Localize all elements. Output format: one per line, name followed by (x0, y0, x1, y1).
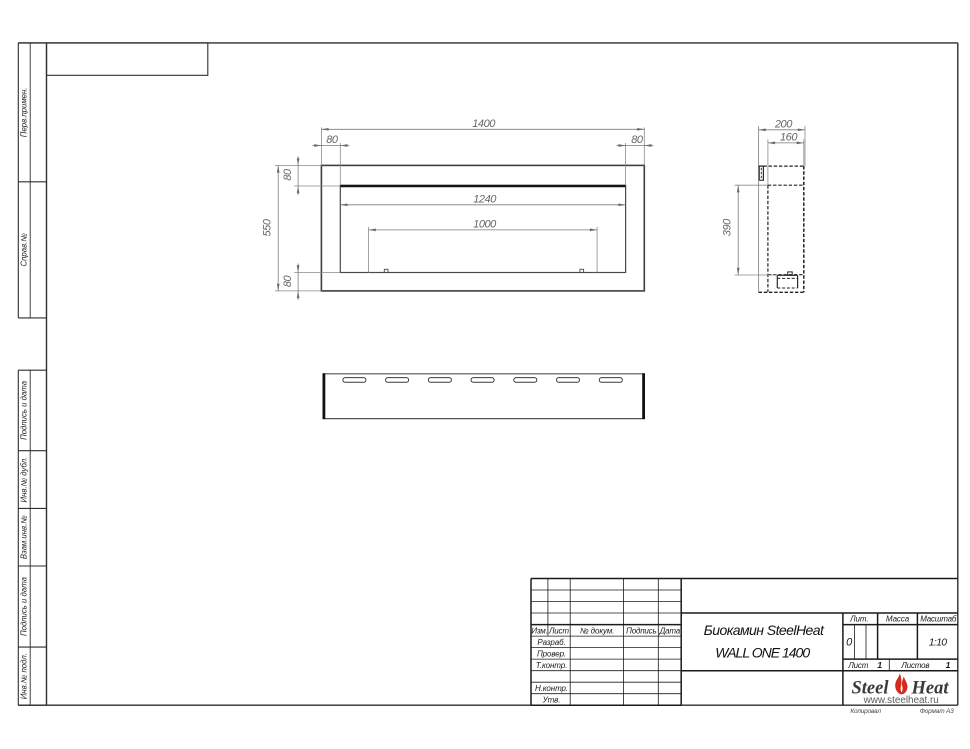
svg-text:1000: 1000 (473, 218, 497, 230)
svg-text:Инв.№ дубл.: Инв.№ дубл. (19, 457, 28, 503)
svg-text:1400: 1400 (472, 118, 496, 130)
svg-text:Биокамин SteelHeat: Биокамин SteelHeat (704, 622, 825, 638)
svg-text:Лит.: Лит. (849, 615, 868, 624)
svg-text:Копировал: Копировал (850, 708, 881, 715)
svg-text:Масштаб: Масштаб (920, 615, 957, 624)
svg-text:Утв.: Утв. (542, 695, 561, 704)
svg-text:390: 390 (722, 218, 734, 236)
svg-text:Провер.: Провер. (537, 649, 566, 658)
svg-text:Листов: Листов (900, 661, 929, 670)
svg-text:200: 200 (774, 118, 793, 130)
svg-text:Н.контр.: Н.контр. (535, 684, 568, 693)
svg-text:1240: 1240 (473, 193, 497, 205)
svg-text:Лист: Лист (847, 661, 868, 670)
svg-text:80: 80 (282, 168, 294, 181)
svg-text:Перв.примен.: Перв.примен. (19, 88, 28, 138)
svg-text:Масса: Масса (886, 615, 910, 624)
svg-text:Формат А3: Формат А3 (920, 708, 954, 715)
svg-text:Справ.№: Справ.№ (19, 233, 28, 266)
svg-text:1:10: 1:10 (929, 637, 947, 649)
svg-text:80: 80 (326, 134, 339, 146)
svg-text:Дата: Дата (659, 626, 681, 635)
svg-text:Взам.инв.№: Взам.инв.№ (19, 515, 28, 559)
svg-text:Изм.: Изм. (531, 626, 547, 635)
svg-text:80: 80 (282, 275, 294, 288)
svg-text:Подпись и дата: Подпись и дата (19, 576, 28, 636)
svg-text:Разраб.: Разраб. (537, 638, 565, 647)
svg-text:Подпись и дата: Подпись и дата (19, 380, 28, 440)
svg-text:0: 0 (846, 637, 853, 649)
svg-text:160: 160 (780, 131, 798, 143)
svg-text:WALL ONE 1400: WALL ONE 1400 (715, 644, 810, 660)
svg-text:Инв.№ подл.: Инв.№ подл. (19, 653, 28, 699)
svg-text:80: 80 (631, 134, 644, 146)
svg-text:№ докум.: № докум. (580, 626, 614, 635)
svg-text:Подпись: Подпись (626, 626, 656, 635)
svg-text:Лист: Лист (548, 626, 569, 635)
svg-text:1: 1 (877, 660, 882, 670)
svg-text:Т.контр.: Т.контр. (536, 661, 567, 670)
svg-text:550: 550 (261, 218, 273, 236)
svg-text:1: 1 (946, 660, 951, 670)
svg-text:www.steelheat.ru: www.steelheat.ru (863, 695, 939, 706)
